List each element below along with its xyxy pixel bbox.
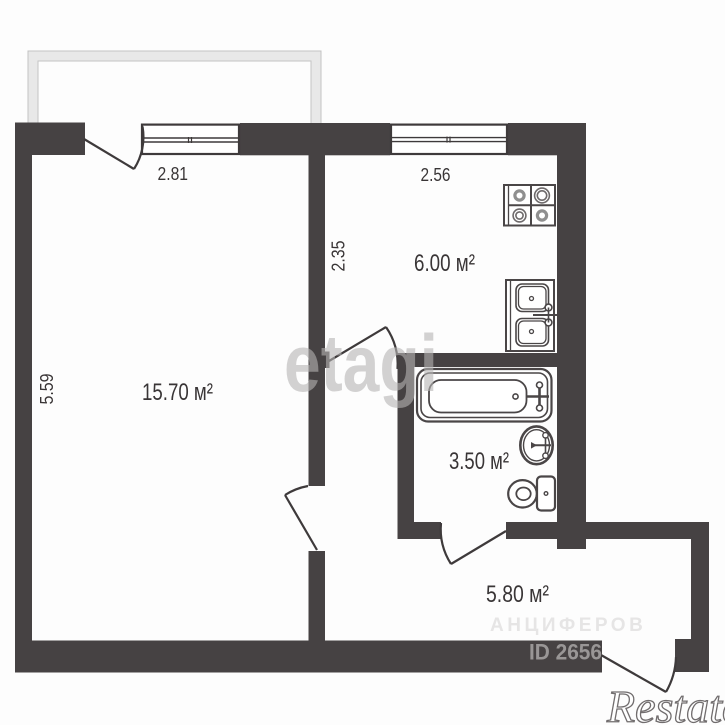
svg-text:etagi: etagi xyxy=(284,319,438,409)
svg-text:2.81: 2.81 xyxy=(158,164,189,184)
svg-text:6.00 м²: 6.00 м² xyxy=(414,250,475,277)
svg-text:15.70 м²: 15.70 м² xyxy=(142,379,213,406)
svg-text:3.50 м²: 3.50 м² xyxy=(449,448,509,475)
svg-text:2.35: 2.35 xyxy=(329,241,349,272)
svg-text:ID 2656: ID 2656 xyxy=(529,640,602,665)
svg-text:5.80 м²: 5.80 м² xyxy=(486,581,549,608)
svg-text:5.59: 5.59 xyxy=(37,374,57,405)
svg-text:АНЦИФЕРОВ: АНЦИФЕРОВ xyxy=(490,615,646,636)
svg-text:2.56: 2.56 xyxy=(421,165,451,185)
svg-text:Restate: Restate xyxy=(606,681,725,725)
